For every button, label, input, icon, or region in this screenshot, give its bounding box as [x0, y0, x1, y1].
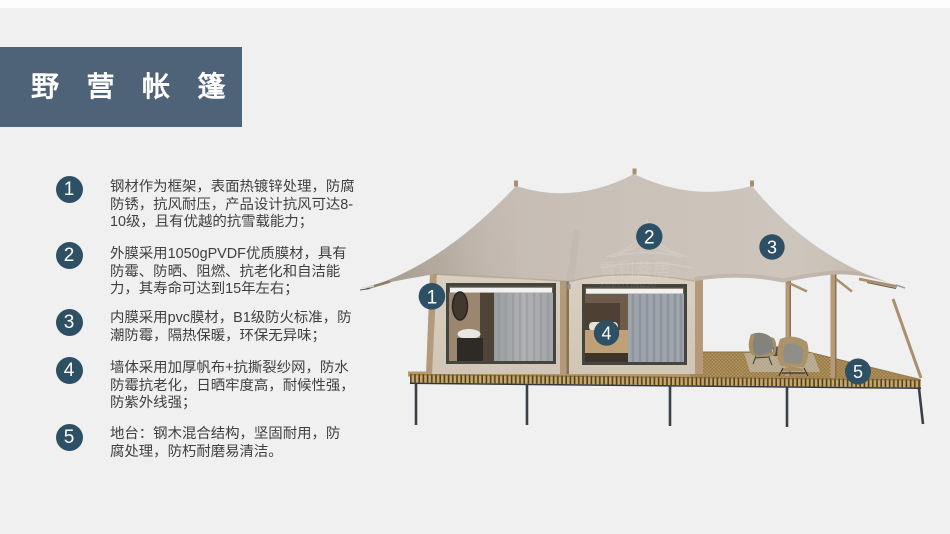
svg-text:雪利营居: 雪利营居	[599, 260, 671, 280]
svg-text:3: 3	[767, 238, 777, 258]
svg-text:2: 2	[644, 228, 655, 249]
svg-text:4: 4	[601, 324, 611, 344]
svg-text:XUELIYINGJU: XUELIYINGJU	[600, 282, 657, 289]
svg-text:1: 1	[427, 287, 438, 308]
svg-text:5: 5	[853, 362, 863, 382]
